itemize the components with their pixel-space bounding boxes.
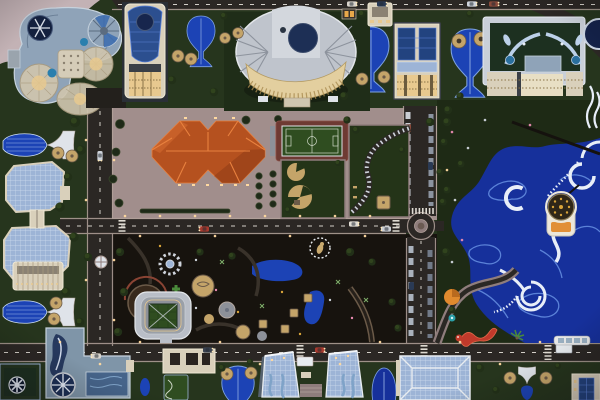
lap-pool — [3, 134, 47, 156]
plunge-pool — [80, 38, 88, 46]
roof-garden-hall — [483, 17, 585, 96]
car — [349, 221, 360, 226]
corner-building — [572, 374, 600, 400]
tower-dome — [137, 14, 154, 31]
square-arena — [135, 292, 191, 343]
fan-roof-hall — [0, 364, 40, 400]
bleacher — [270, 126, 275, 156]
car — [203, 347, 214, 352]
car — [489, 1, 500, 6]
kiosk — [556, 344, 572, 353]
rail-garden — [349, 125, 410, 217]
glass-atrium-tower — [122, 2, 168, 102]
mini-court — [164, 375, 188, 400]
forecourt — [86, 88, 126, 108]
car — [315, 347, 326, 352]
arena-oculus — [289, 24, 318, 53]
aerial-scene — [0, 0, 600, 400]
soccer-pitch — [282, 126, 342, 156]
roundabout-dome — [418, 223, 425, 230]
fan-icon — [10, 378, 24, 392]
dragon-eye — [457, 336, 459, 338]
twin-panel-hall — [393, 22, 441, 100]
car — [467, 1, 478, 6]
plaza-steps — [300, 384, 322, 397]
car — [199, 226, 210, 231]
plunge-pool — [48, 69, 57, 78]
club-pool — [86, 372, 128, 396]
glass-hip-hall — [396, 356, 470, 400]
kiosk — [297, 357, 313, 366]
aerial-resort-view — [0, 0, 600, 400]
dragon-head — [456, 335, 463, 342]
terrace-building — [13, 262, 63, 290]
car — [91, 353, 102, 358]
shuttle-bus — [554, 336, 590, 345]
car — [347, 1, 358, 6]
glass-exhibition-halls — [258, 351, 363, 398]
car — [97, 151, 102, 162]
oval-arena — [224, 6, 370, 112]
hedge-row — [140, 209, 230, 213]
lap-pool — [3, 301, 47, 323]
car — [377, 1, 388, 6]
car — [381, 226, 392, 231]
pond-small — [140, 378, 150, 396]
